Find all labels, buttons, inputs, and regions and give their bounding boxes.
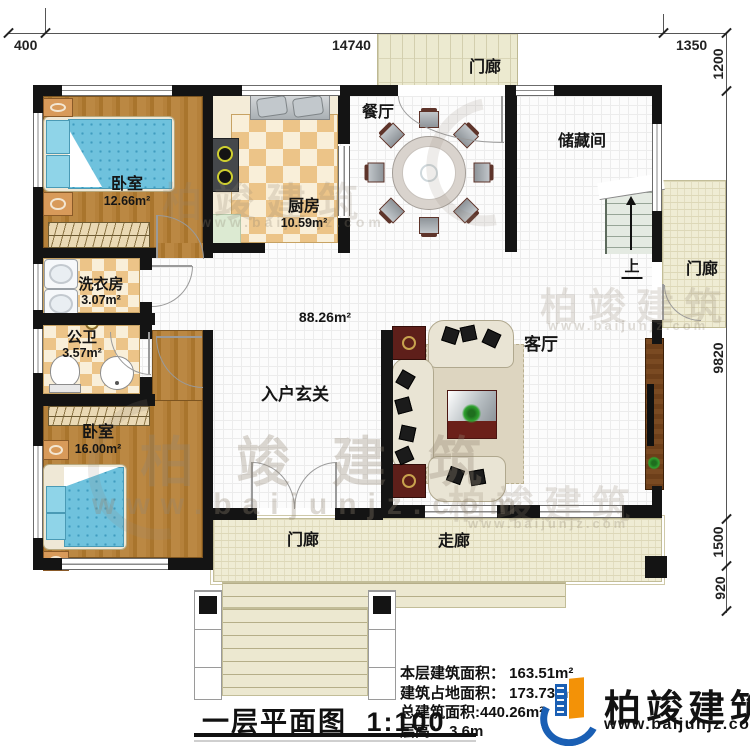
dim-920: 920 bbox=[712, 558, 728, 618]
bathroom-label: 公卫 3.57m² bbox=[62, 330, 102, 360]
sofa-pillow bbox=[399, 425, 417, 443]
porch-door-leaf bbox=[662, 284, 664, 320]
plant-icon bbox=[462, 404, 481, 423]
wall bbox=[338, 218, 350, 253]
entry-door-leaf bbox=[251, 462, 253, 508]
dim-line-top bbox=[8, 33, 726, 34]
bed-sheet-fold bbox=[68, 119, 102, 187]
toilet-tank bbox=[49, 384, 81, 393]
room-area: 10.59m² bbox=[281, 216, 328, 230]
door-leaf bbox=[152, 265, 192, 267]
dim-14740: 14740 bbox=[332, 37, 371, 53]
logo-building-orange bbox=[569, 677, 584, 719]
porch-right-label: 门廊 bbox=[686, 261, 718, 279]
plant-icon bbox=[648, 456, 660, 470]
main-area-label: 88.26m² bbox=[299, 309, 351, 325]
burner-icon bbox=[217, 146, 233, 162]
info-floor-height: 层高： 3.6m bbox=[400, 720, 483, 741]
dim-400: 400 bbox=[14, 37, 37, 53]
foyer-label: 入户玄关 bbox=[261, 380, 329, 405]
sofa-pillow bbox=[460, 325, 478, 343]
wall bbox=[335, 508, 383, 520]
window bbox=[540, 505, 622, 518]
window bbox=[33, 264, 43, 310]
window bbox=[652, 124, 662, 211]
corner-pier bbox=[645, 556, 667, 578]
window bbox=[33, 329, 43, 373]
room-name: 公卫 bbox=[62, 330, 102, 346]
room-name: 卧室 bbox=[104, 176, 151, 194]
kitchen-sink bbox=[250, 92, 330, 120]
window bbox=[425, 505, 497, 518]
room-area: 3.57m² bbox=[62, 346, 102, 360]
bed-pillow bbox=[46, 120, 70, 154]
dim-1350: 1350 bbox=[676, 37, 707, 53]
logo-building-blue bbox=[555, 684, 567, 716]
laundry-label: 洗衣房 3.07m² bbox=[78, 277, 123, 307]
stair-arrow-line bbox=[630, 204, 632, 250]
bed-pillow bbox=[46, 513, 66, 540]
kitchen-label: 厨房 10.59m² bbox=[281, 198, 328, 230]
wall bbox=[140, 258, 152, 270]
wall bbox=[652, 96, 662, 124]
room-name: 卧室 bbox=[75, 424, 122, 442]
bedroom1-label: 卧室 12.66m² bbox=[104, 176, 151, 208]
door-leaf bbox=[156, 336, 202, 338]
wall bbox=[33, 248, 157, 258]
door-leaf bbox=[148, 332, 150, 374]
bedroom2-label: 卧室 16.00m² bbox=[75, 424, 122, 456]
nightstand bbox=[43, 440, 69, 460]
door-opening bbox=[398, 85, 505, 96]
wall bbox=[33, 313, 155, 325]
room-name: 洗衣房 bbox=[78, 277, 123, 293]
wall bbox=[652, 211, 662, 262]
bed-pillow bbox=[46, 486, 66, 513]
entry-steps bbox=[222, 608, 368, 696]
wall bbox=[213, 508, 257, 520]
storage-label: 储藏间 bbox=[558, 133, 606, 151]
stair-up-arrow bbox=[626, 196, 636, 205]
dining-chair bbox=[419, 217, 439, 234]
window bbox=[33, 446, 43, 538]
wall bbox=[203, 85, 213, 258]
entry-door-leaf bbox=[335, 462, 337, 508]
pillar-cap bbox=[373, 596, 391, 614]
wall bbox=[338, 96, 350, 144]
room-name: 厨房 bbox=[281, 198, 328, 216]
window bbox=[516, 85, 554, 96]
sofa-bottom bbox=[428, 456, 506, 502]
window bbox=[242, 85, 340, 96]
info-total-area: 总建筑面积:440.26m² bbox=[400, 701, 544, 722]
sink-basin bbox=[292, 95, 324, 118]
nightstand bbox=[43, 192, 73, 216]
bed-pillow bbox=[46, 155, 70, 188]
end-table bbox=[392, 464, 426, 498]
room-area: 16.00m² bbox=[75, 442, 122, 456]
dim-9820: 9820 bbox=[710, 328, 726, 388]
dim-1200: 1200 bbox=[710, 34, 726, 94]
dining-label: 餐厅 bbox=[362, 104, 394, 122]
room-area: 3.07m² bbox=[78, 293, 123, 307]
porch-bottom-label: 门廊 bbox=[287, 532, 319, 550]
dining-chair bbox=[368, 163, 385, 183]
room-area: 12.66m² bbox=[104, 194, 151, 208]
window bbox=[62, 558, 168, 570]
stairs-up-label: 上 bbox=[621, 255, 642, 279]
floor-plan-sheet: 400 14740 1350 1200 9820 1500 920 bbox=[0, 0, 750, 746]
brand-logo-icon bbox=[540, 676, 598, 738]
stove bbox=[211, 138, 239, 192]
living-label: 客厅 bbox=[524, 330, 558, 355]
wall bbox=[652, 320, 662, 344]
sink-basin bbox=[256, 95, 288, 118]
porch-top-label: 门廊 bbox=[469, 59, 501, 77]
wall bbox=[203, 243, 265, 253]
wall bbox=[381, 330, 393, 506]
tv-icon bbox=[647, 384, 654, 446]
end-table bbox=[392, 326, 426, 360]
serving-window bbox=[338, 146, 350, 216]
walkway-label: 走廊 bbox=[438, 533, 470, 551]
sofa-pillow bbox=[469, 469, 486, 486]
window bbox=[33, 113, 43, 187]
burner-icon bbox=[217, 169, 233, 185]
washing-machine bbox=[44, 259, 78, 289]
window bbox=[62, 85, 172, 96]
dim-line-right bbox=[726, 33, 727, 613]
door-leaf bbox=[156, 215, 158, 258]
brand-url: www.baijunjz.com bbox=[604, 716, 750, 734]
bedroom1-wardrobe bbox=[48, 222, 150, 248]
pillar-cap bbox=[199, 596, 217, 614]
nightstand bbox=[43, 98, 73, 117]
